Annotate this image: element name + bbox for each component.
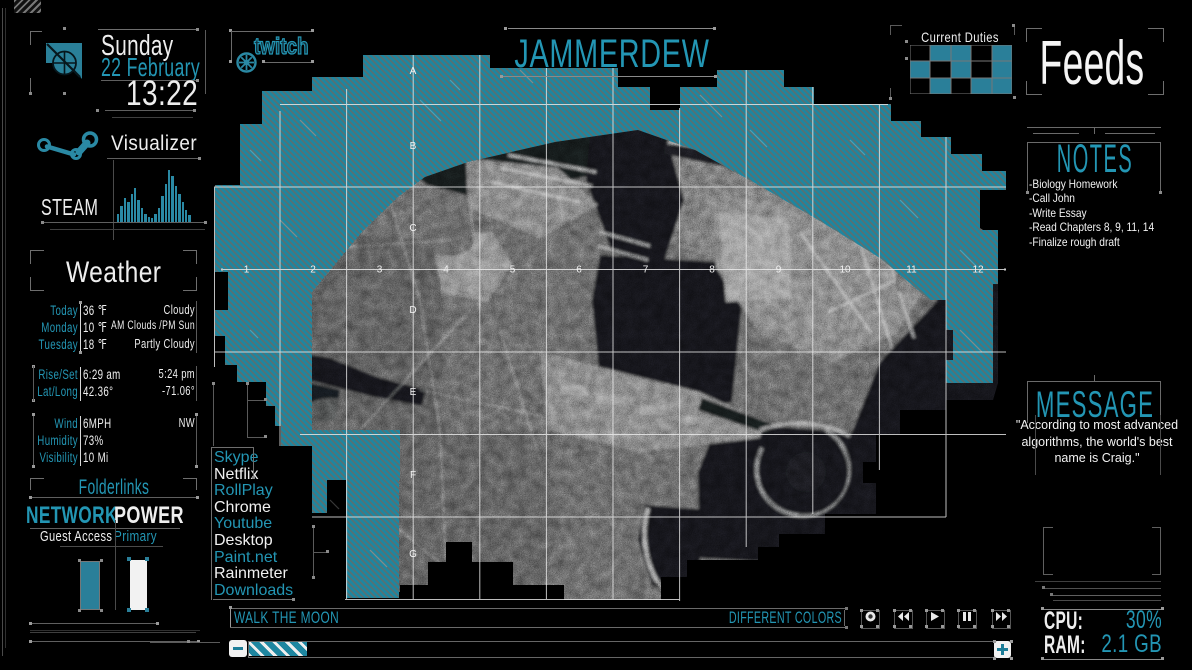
svg-text:8: 8 bbox=[709, 265, 715, 276]
svg-text:2: 2 bbox=[310, 265, 316, 276]
svg-text:G: G bbox=[409, 549, 417, 560]
svg-text:E: E bbox=[410, 387, 417, 398]
svg-text:10: 10 bbox=[839, 265, 851, 276]
svg-text:D: D bbox=[409, 305, 416, 316]
svg-text:A: A bbox=[410, 66, 417, 77]
svg-text:C: C bbox=[409, 223, 416, 234]
svg-text:12: 12 bbox=[972, 265, 984, 276]
svg-text:6: 6 bbox=[576, 265, 582, 276]
svg-text:9: 9 bbox=[776, 265, 782, 276]
svg-text:5: 5 bbox=[510, 265, 516, 276]
svg-text:1: 1 bbox=[244, 265, 250, 276]
svg-text:4: 4 bbox=[443, 265, 449, 276]
svg-text:11: 11 bbox=[906, 265, 917, 276]
svg-text:3: 3 bbox=[377, 265, 383, 276]
svg-text:7: 7 bbox=[643, 265, 649, 276]
svg-text:B: B bbox=[410, 141, 417, 152]
svg-text:F: F bbox=[410, 470, 416, 481]
